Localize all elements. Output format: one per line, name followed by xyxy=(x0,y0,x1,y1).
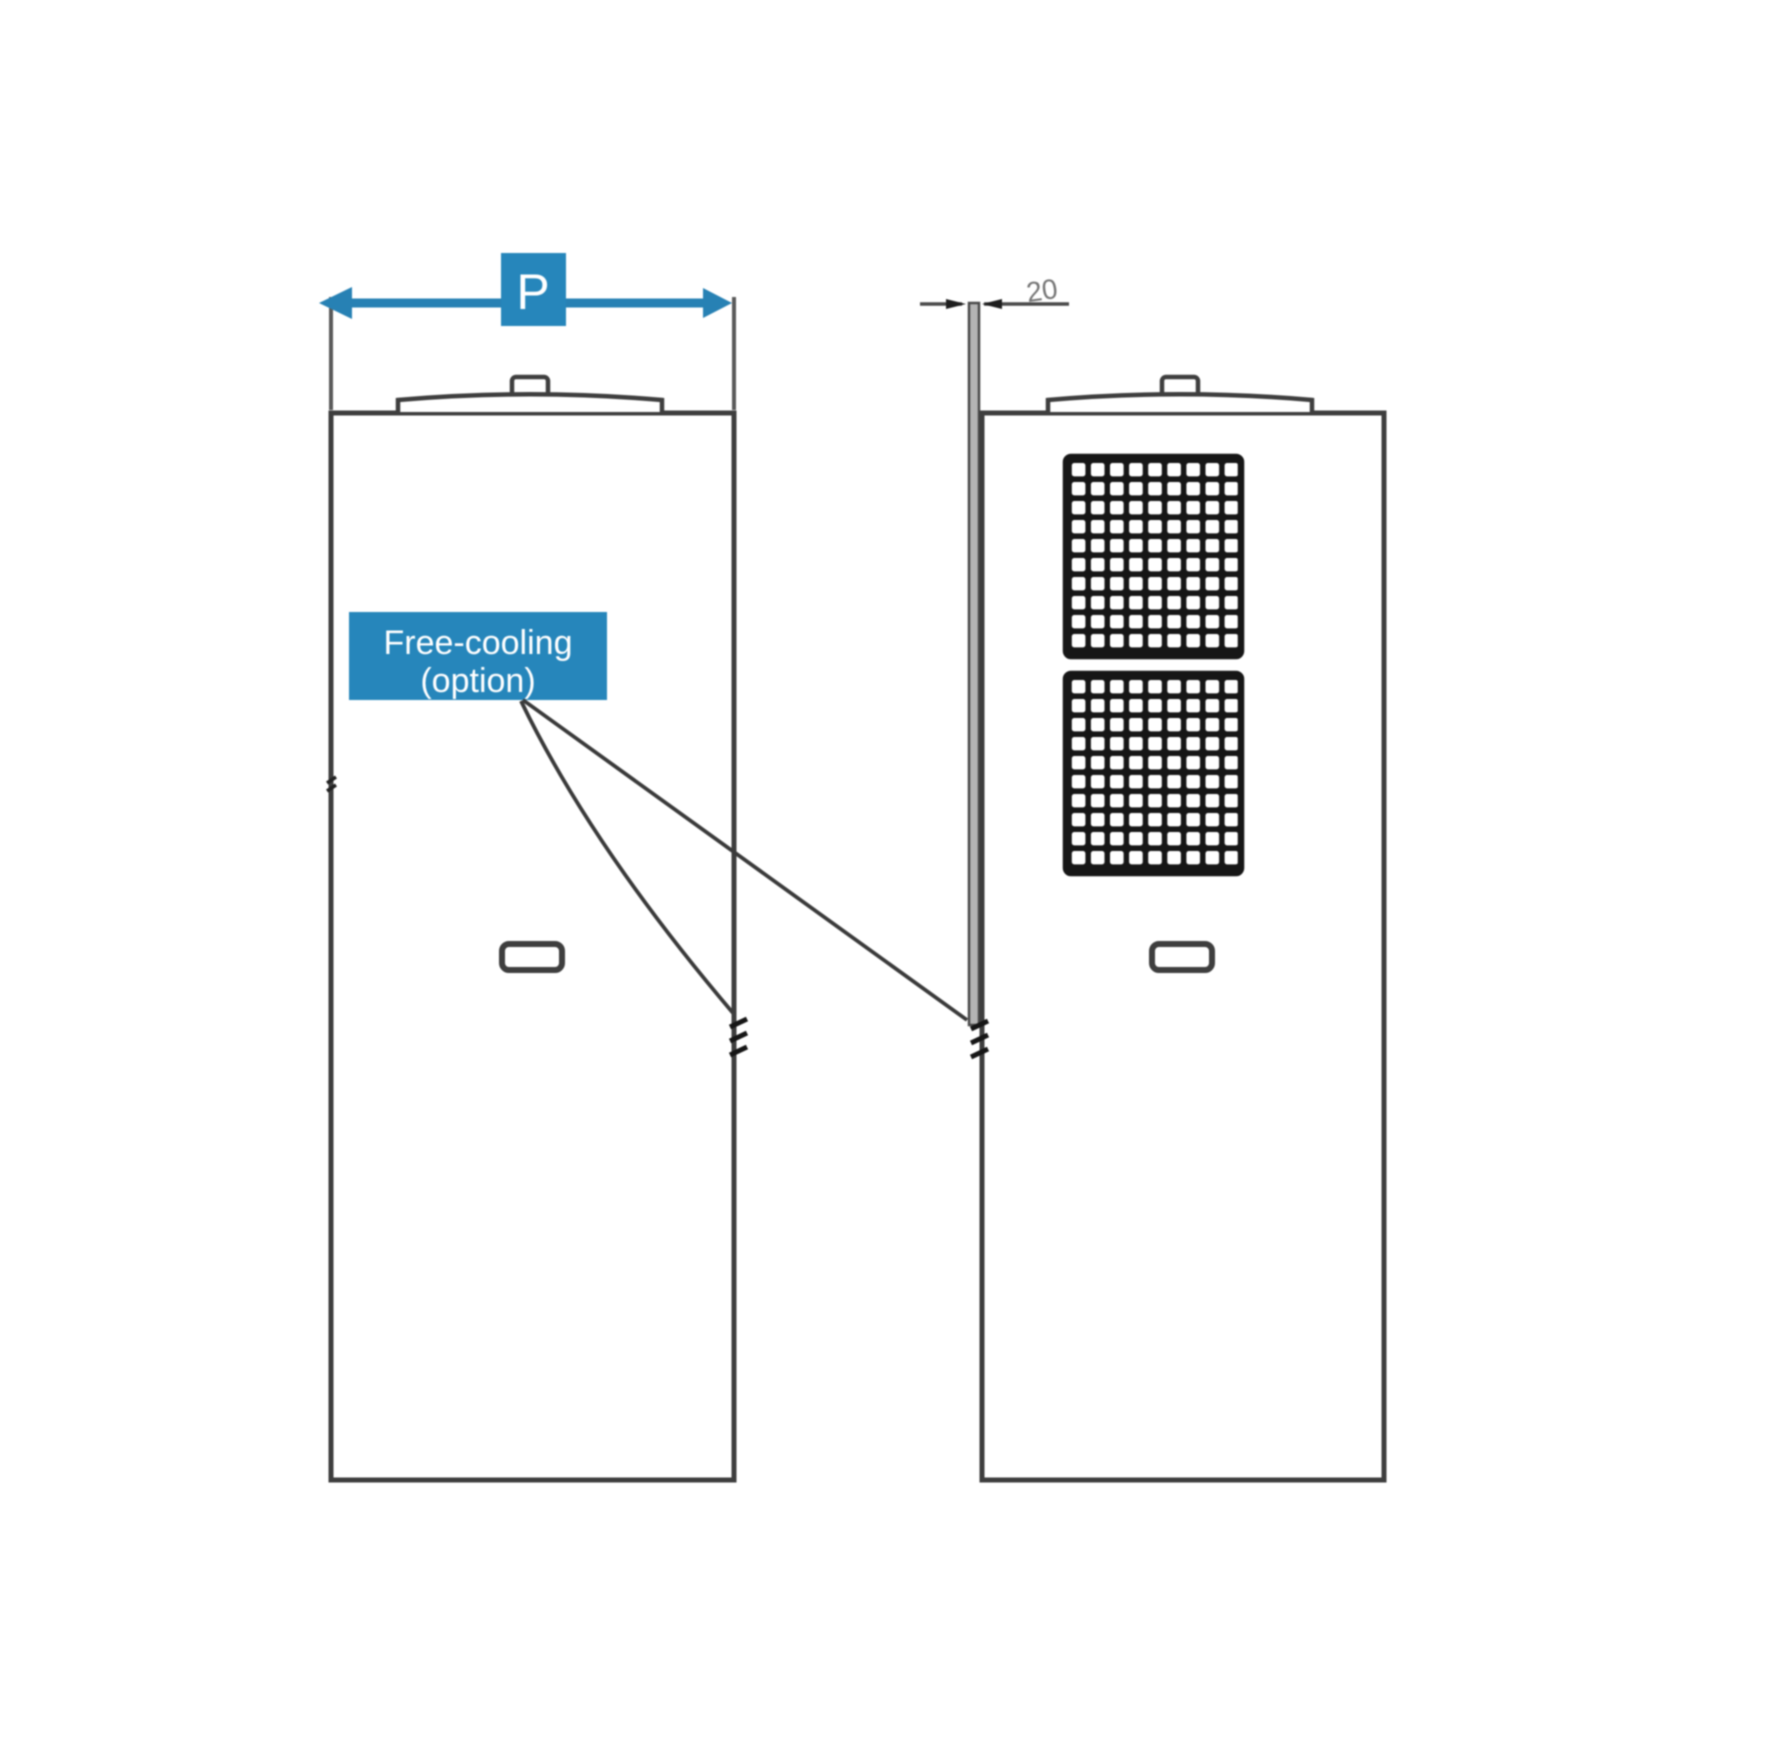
svg-text:(option): (option) xyxy=(420,662,535,700)
svg-text:P: P xyxy=(516,264,549,320)
svg-text:Free-cooling: Free-cooling xyxy=(384,624,573,662)
svg-text:20: 20 xyxy=(1024,273,1059,308)
